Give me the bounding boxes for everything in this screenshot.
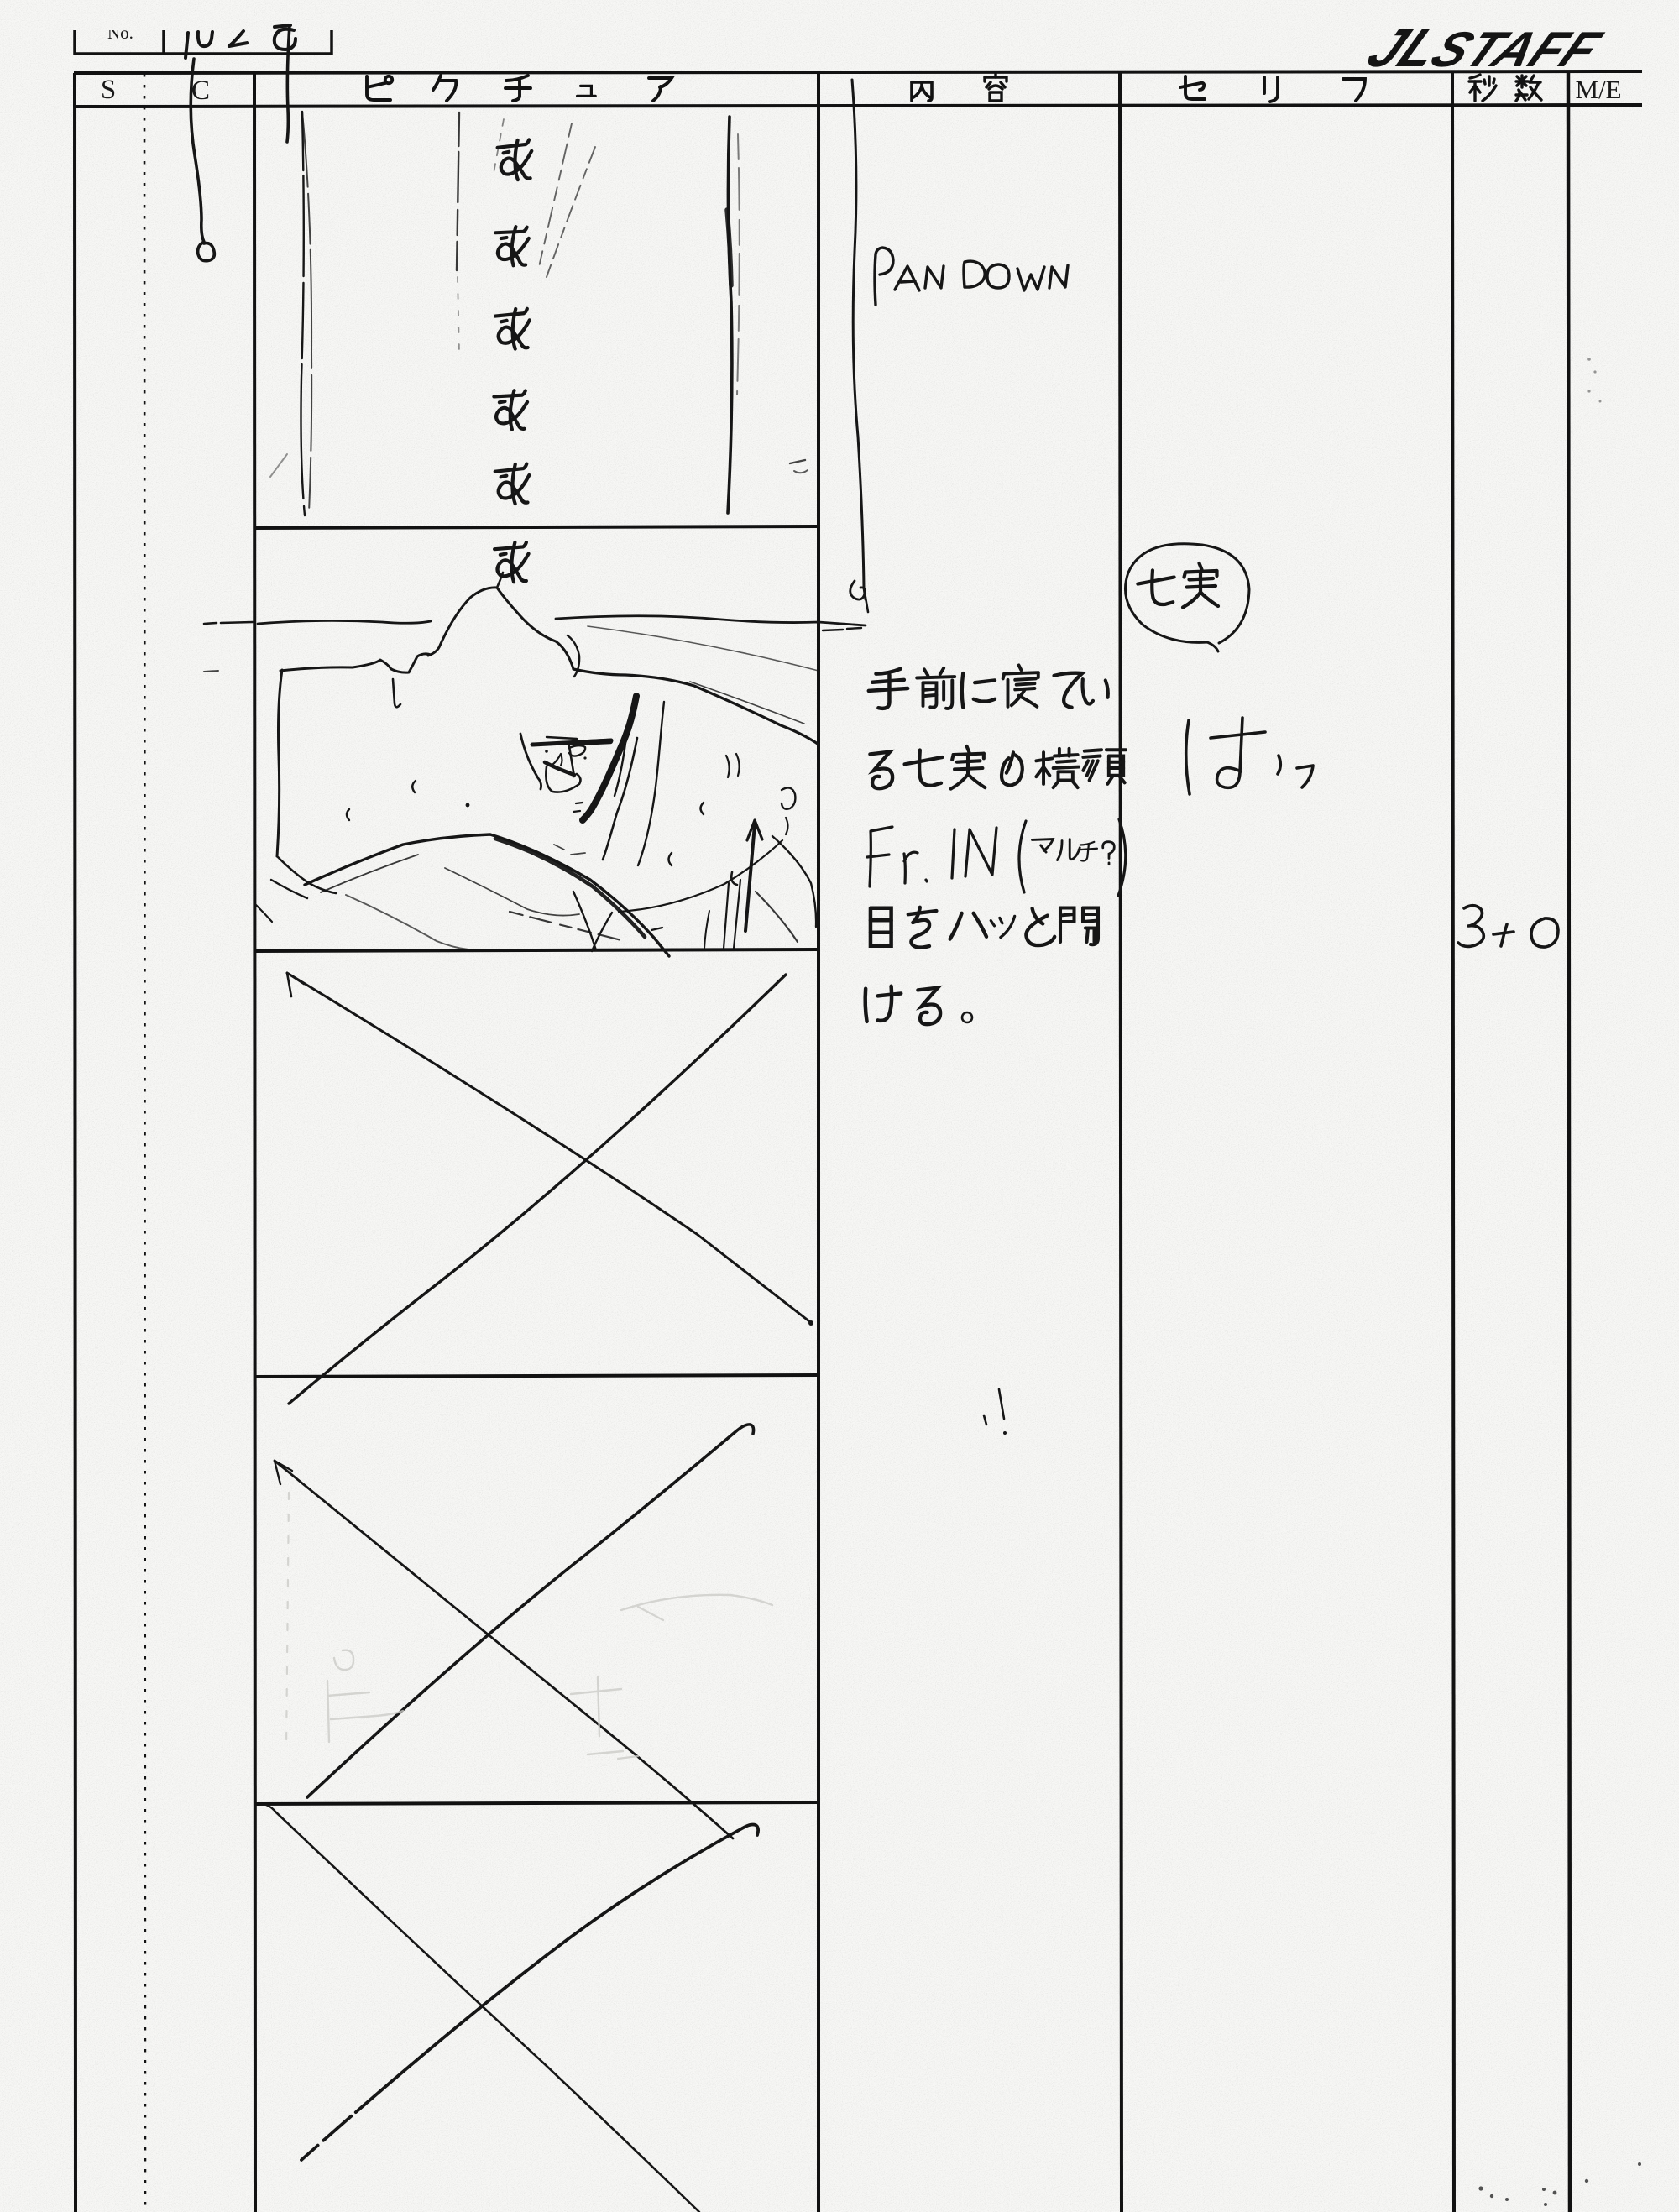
svg-text:M/E: M/E xyxy=(1575,75,1621,104)
svg-text:C: C xyxy=(191,76,210,106)
svg-text:STAFF: STAFF xyxy=(1421,23,1611,78)
svg-text:S: S xyxy=(101,75,116,105)
